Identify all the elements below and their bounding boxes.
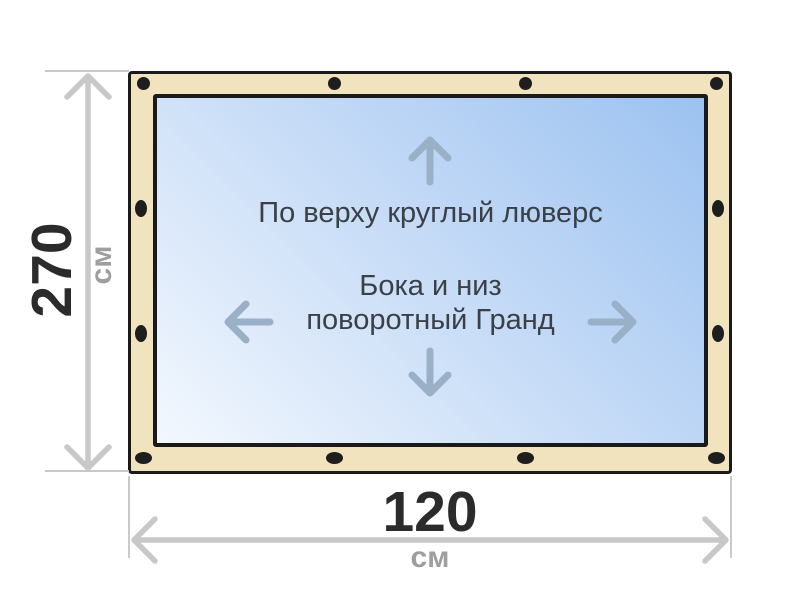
height-unit: см [89,230,115,300]
grommet-bottom-3 [517,452,534,464]
sides-note-line1: Бока и низ [157,269,704,303]
grommet-top-3 [519,77,532,90]
grommet-top-2 [328,77,341,90]
width-unit: см [330,543,530,573]
grommet-right-1 [712,200,724,217]
grommet-top-1 [137,77,150,90]
grommet-right-2 [712,325,724,342]
height-value: 270 [22,210,82,330]
arrow-down-icon [408,346,452,398]
grommet-left-1 [135,200,147,217]
grommet-bottom-4 [708,452,725,464]
grommet-bottom-2 [326,452,343,464]
grommet-top-4 [710,77,723,90]
arrow-up-icon [408,135,452,187]
top-edge-note: По верху круглый люверс [157,196,704,230]
banner-canvas: По верху круглый люверс Бока и низ повор… [153,94,708,447]
banner-frame: По верху круглый люверс Бока и низ повор… [128,71,732,474]
grommet-bottom-1 [135,452,152,464]
arrow-right-icon [586,300,638,344]
banner-size-diagram: По верху круглый люверс Бока и низ повор… [0,0,800,600]
width-value: 120 [330,485,530,539]
grommet-left-2 [135,325,147,342]
